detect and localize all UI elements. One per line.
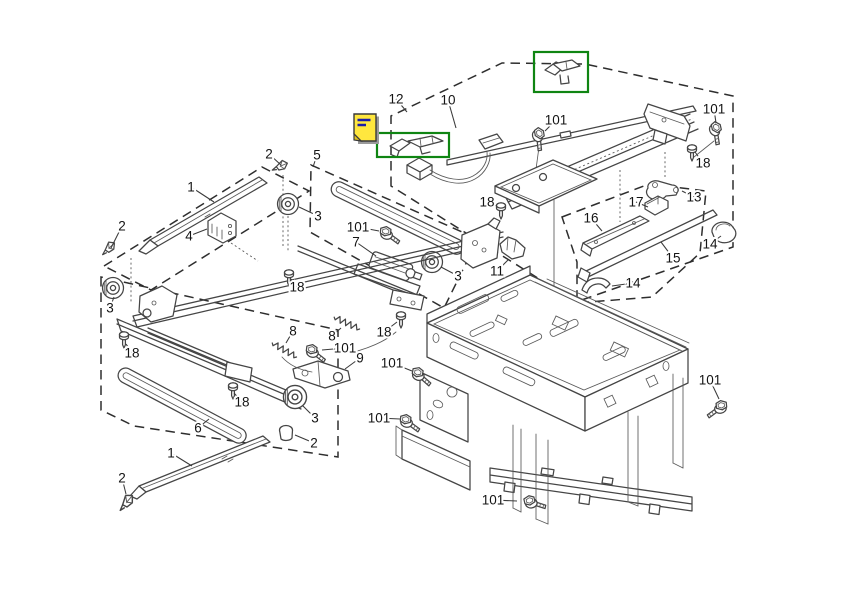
part-callout-101: 101 [368,411,391,426]
part-2-clip [272,159,287,172]
part-callout-2: 2 [310,436,318,451]
part-callout-18: 18 [234,395,249,410]
dash-box-group-1 [104,167,309,290]
part-callout-101: 101 [381,356,404,371]
exploded-parts-diagram: 1210101101182511813173162101471415113141… [0,0,842,595]
part-callout-14: 14 [625,276,641,291]
part-callout-10: 10 [440,93,455,108]
part-callout-9: 9 [356,351,364,366]
screw-101-bolt [705,120,729,146]
frame-rail-front [117,319,305,409]
part-callout-18: 18 [695,156,710,171]
part-callout-18: 18 [376,325,391,340]
part-callout-7: 7 [352,235,360,250]
part-callout-101: 101 [545,113,568,128]
screw-101-bolt [304,344,327,363]
part-9-roller-bracket [293,361,350,388]
part-callout-16: 16 [583,211,598,226]
part-callout-11: 11 [490,264,504,279]
highlight-box [534,52,588,92]
screw-101-bolt [528,126,552,152]
part-callout-3: 3 [106,301,114,316]
frame-corner-bracket-right [461,218,500,268]
part-1-rail-upper [139,177,267,254]
screw-101-bolt [524,494,547,512]
part-callout-101: 101 [482,493,505,508]
part-17-bracket [645,196,668,215]
part-3-pulley [103,278,124,299]
screw-101-bolt [705,400,728,418]
part-13-clamp [647,181,679,200]
part-callout-15: 15 [665,251,680,266]
part-callout-12: 12 [388,92,403,107]
part-callout-3: 3 [314,209,322,224]
part-callout-8: 8 [289,324,297,339]
part-callout-101: 101 [334,341,357,356]
part-callout-1: 1 [167,446,175,461]
part-callout-17: 17 [628,195,643,210]
part-11-bracket [500,237,525,259]
part-callout-13: 13 [686,190,701,205]
part-3-pulley [278,194,299,215]
part-callout-1: 1 [187,180,195,195]
part-2-clip [116,493,135,510]
part-callout-101: 101 [703,102,726,117]
harness-clamp [390,136,443,157]
screw-101-bolt [379,226,402,244]
part-callout-101: 101 [347,220,370,235]
frame-rail-front-inner [148,328,252,382]
screw-101-bolt [399,414,422,432]
part-callout-3: 3 [454,269,462,284]
part-callout-18: 18 [479,195,494,210]
part-callout-6: 6 [194,421,202,436]
parts-diagram-page: 1210101101182511813173162101471415113141… [0,0,842,595]
screw-18 [397,312,406,328]
sticky-note-icon[interactable] [354,114,379,144]
part-callout-101: 101 [699,373,722,388]
part-callout-18: 18 [124,346,139,361]
part-1-rail-lower [130,436,270,499]
part-callout-14: 14 [702,237,718,252]
part-callout-2: 2 [118,471,126,486]
tray-bottom-rail [490,468,692,515]
part-2-roller-cap [280,426,293,441]
part-4-guide-bracket [208,213,236,243]
part-callout-4: 4 [185,229,193,244]
part-callout-18: 18 [289,280,304,295]
part-callout-2: 2 [118,219,126,234]
screw-18 [497,203,506,219]
part-callout-3: 3 [311,411,319,426]
part-callout-2: 2 [265,147,273,162]
part-3-pulley [283,385,306,408]
highlight-box [377,133,449,157]
part-8-spring [271,340,298,359]
part-callout-5: 5 [313,148,321,163]
frame-corner-bracket-left [139,286,177,322]
